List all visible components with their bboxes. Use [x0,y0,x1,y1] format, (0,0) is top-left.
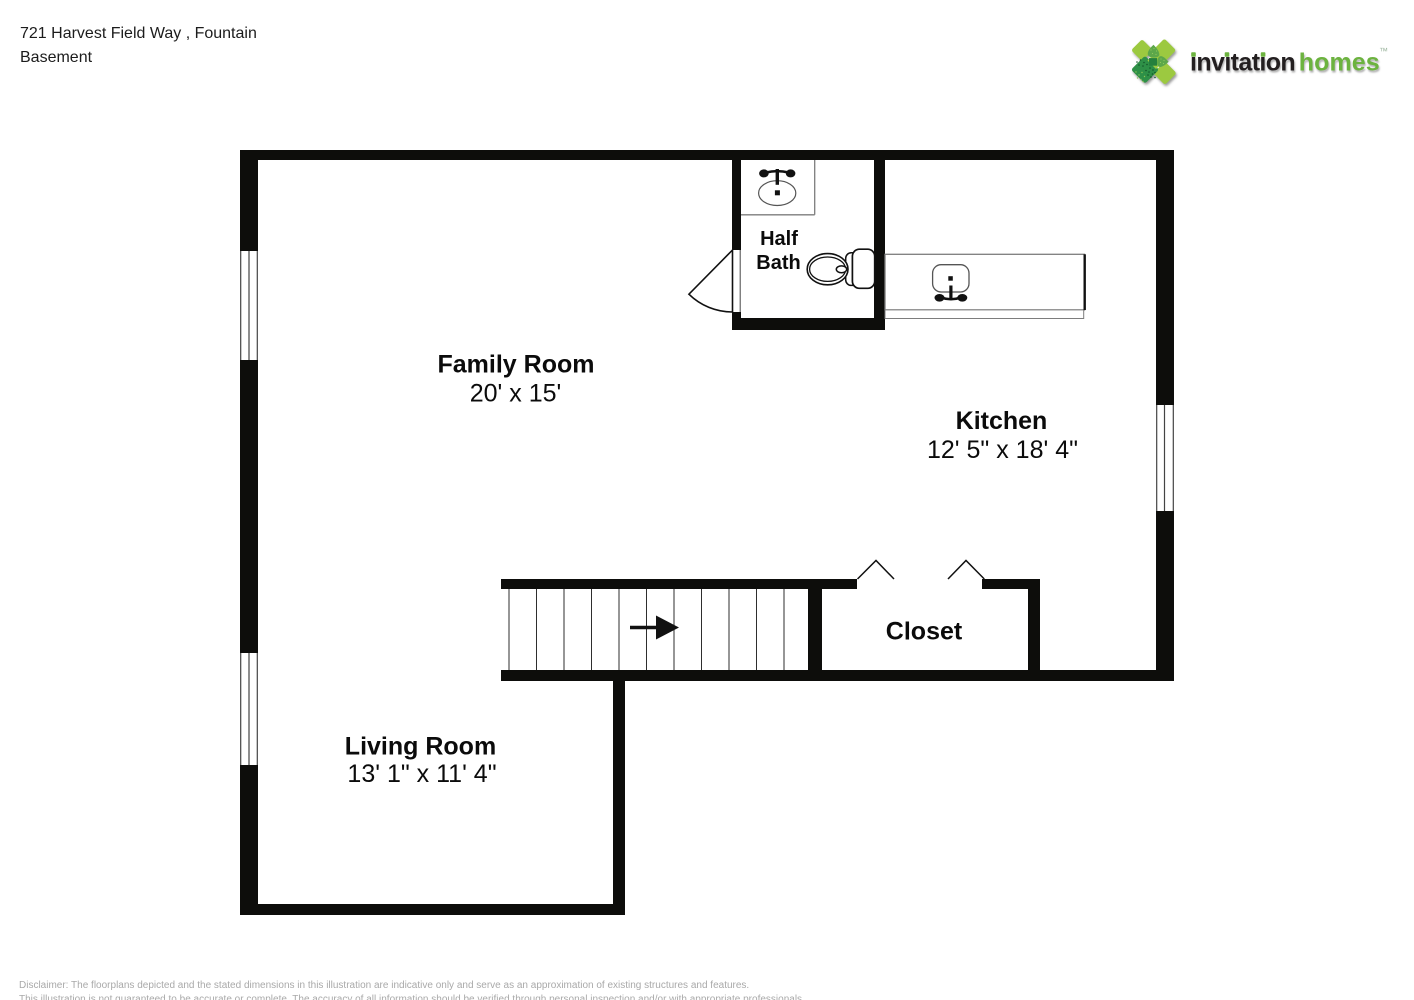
svg-text:721 Harvest Field Way , Founta: 721 Harvest Field Way , Fountain [20,25,257,42]
svg-text:13' 1" x 11' 4": 13' 1" x 11' 4" [347,760,496,788]
svg-text:20' x 15': 20' x 15' [470,380,562,408]
svg-text:ınvıtatıonhomes: ınvıtatıonhomes [1190,49,1380,77]
svg-text:Family Room: Family Room [438,351,595,379]
svg-text:Closet: Closet [886,618,963,646]
svg-text:Basement: Basement [20,49,93,66]
svg-text:Bath: Bath [756,252,800,274]
svg-text:Living Room: Living Room [345,732,496,760]
svg-text:12' 5" x 18' 4": 12' 5" x 18' 4" [927,436,1078,464]
svg-text:Half: Half [760,228,798,250]
svg-text:This illustration is not guara: This illustration is not guaranteed to b… [19,994,805,1000]
svg-text:Kitchen: Kitchen [956,407,1048,435]
svg-text:Disclaimer: The floorplans dep: Disclaimer: The floorplans depicted and … [19,980,749,991]
svg-text:™: ™ [1379,46,1388,56]
